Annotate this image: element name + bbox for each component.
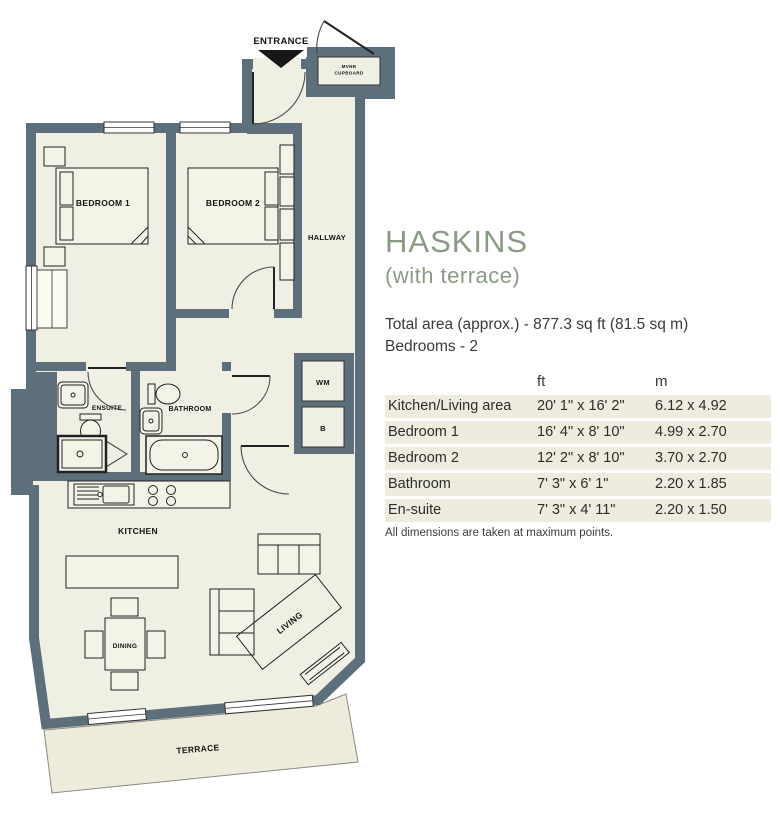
row-ft: 7' 3" x 6' 1" <box>537 476 655 492</box>
table-row: En-suite 7' 3" x 4' 11" 2.20 x 1.50 <box>385 499 771 522</box>
row-m: 2.20 x 1.85 <box>655 476 771 492</box>
sofa-left <box>210 589 254 655</box>
bedroom2-window <box>180 122 230 133</box>
cupboard-label-1: MVHR <box>342 64 357 69</box>
bedroom1-nightstand-top <box>44 147 65 166</box>
bedroom1-window <box>104 122 154 133</box>
table-row: Bedroom 1 16' 4" x 8' 10" 4.99 x 2.70 <box>385 421 771 444</box>
bathroom-bath <box>146 436 222 474</box>
row-name: Kitchen/Living area <box>388 398 537 414</box>
bathroom-sink <box>140 408 162 434</box>
bedroom1-nightstand-bottom <box>44 247 65 266</box>
row-ft: 16' 4" x 8' 10" <box>537 424 655 440</box>
row-m: 2.20 x 1.50 <box>655 502 771 518</box>
cupboard-label-2: CUPBOARD <box>335 71 364 76</box>
row-name: Bedroom 2 <box>388 450 537 466</box>
row-name: Bathroom <box>388 476 537 492</box>
bedroom1-side-window <box>26 266 67 330</box>
bedroom2-wardrobe <box>280 145 294 280</box>
hallway-label: HALLWAY <box>308 233 346 242</box>
dimensions-header: ft m <box>385 371 771 395</box>
sofa-top <box>258 534 320 574</box>
page-title: HASKINS <box>385 226 771 259</box>
row-m: 4.99 x 2.70 <box>655 424 771 440</box>
table-row: Bathroom 7' 3" x 6' 1" 2.20 x 1.85 <box>385 473 771 496</box>
dining-label: DINING <box>113 643 138 650</box>
wm-label: WM <box>316 378 330 387</box>
bathroom-label: BATHROOM <box>168 406 211 413</box>
row-m: 6.12 x 4.92 <box>655 398 771 414</box>
row-name: En-suite <box>388 502 537 518</box>
row-m: 3.70 x 2.70 <box>655 450 771 466</box>
entrance-label: ENTRANCE <box>253 36 308 47</box>
table-row: Bedroom 2 12' 2" x 8' 10" 3.70 x 2.70 <box>385 447 771 470</box>
total-area-text: Total area (approx.) - 877.3 sq ft (81.5… <box>385 314 771 336</box>
dimensions-note: All dimensions are taken at maximum poin… <box>385 527 771 539</box>
kitchen-island <box>66 556 178 588</box>
row-ft: 7' 3" x 4' 11" <box>537 502 655 518</box>
row-name: Bedroom 1 <box>388 424 537 440</box>
info-panel: HASKINS (with terrace) Total area (appro… <box>385 226 771 539</box>
header-m: m <box>655 373 771 390</box>
page-subtitle: (with terrace) <box>385 263 771 289</box>
header-ft: ft <box>537 373 655 390</box>
dimensions-table: ft m Kitchen/Living area 20' 1" x 16' 2"… <box>385 371 771 539</box>
wall-ensuite-bathroom <box>131 362 140 481</box>
bedroom2-label: BEDROOM 2 <box>206 198 260 208</box>
bedroom1-label: BEDROOM 1 <box>76 198 130 208</box>
floorplan-svg: TERRACE <box>0 0 400 822</box>
boiler-label: B <box>320 424 326 433</box>
bathroom-toilet <box>148 384 180 404</box>
ensuite-sink <box>58 382 88 408</box>
wall-bedroom-divider <box>166 123 176 369</box>
row-ft: 20' 1" x 16' 2" <box>537 398 655 414</box>
ensuite-label: ENSUITE <box>92 405 123 412</box>
floorplan-page: TERRACE <box>0 0 780 822</box>
ensuite-shower <box>58 436 106 472</box>
bedrooms-text: Bedrooms - 2 <box>385 336 771 358</box>
table-row: Kitchen/Living area 20' 1" x 16' 2" 6.12… <box>385 395 771 418</box>
row-ft: 12' 2" x 8' 10" <box>537 450 655 466</box>
kitchen-label: KITCHEN <box>118 526 158 536</box>
